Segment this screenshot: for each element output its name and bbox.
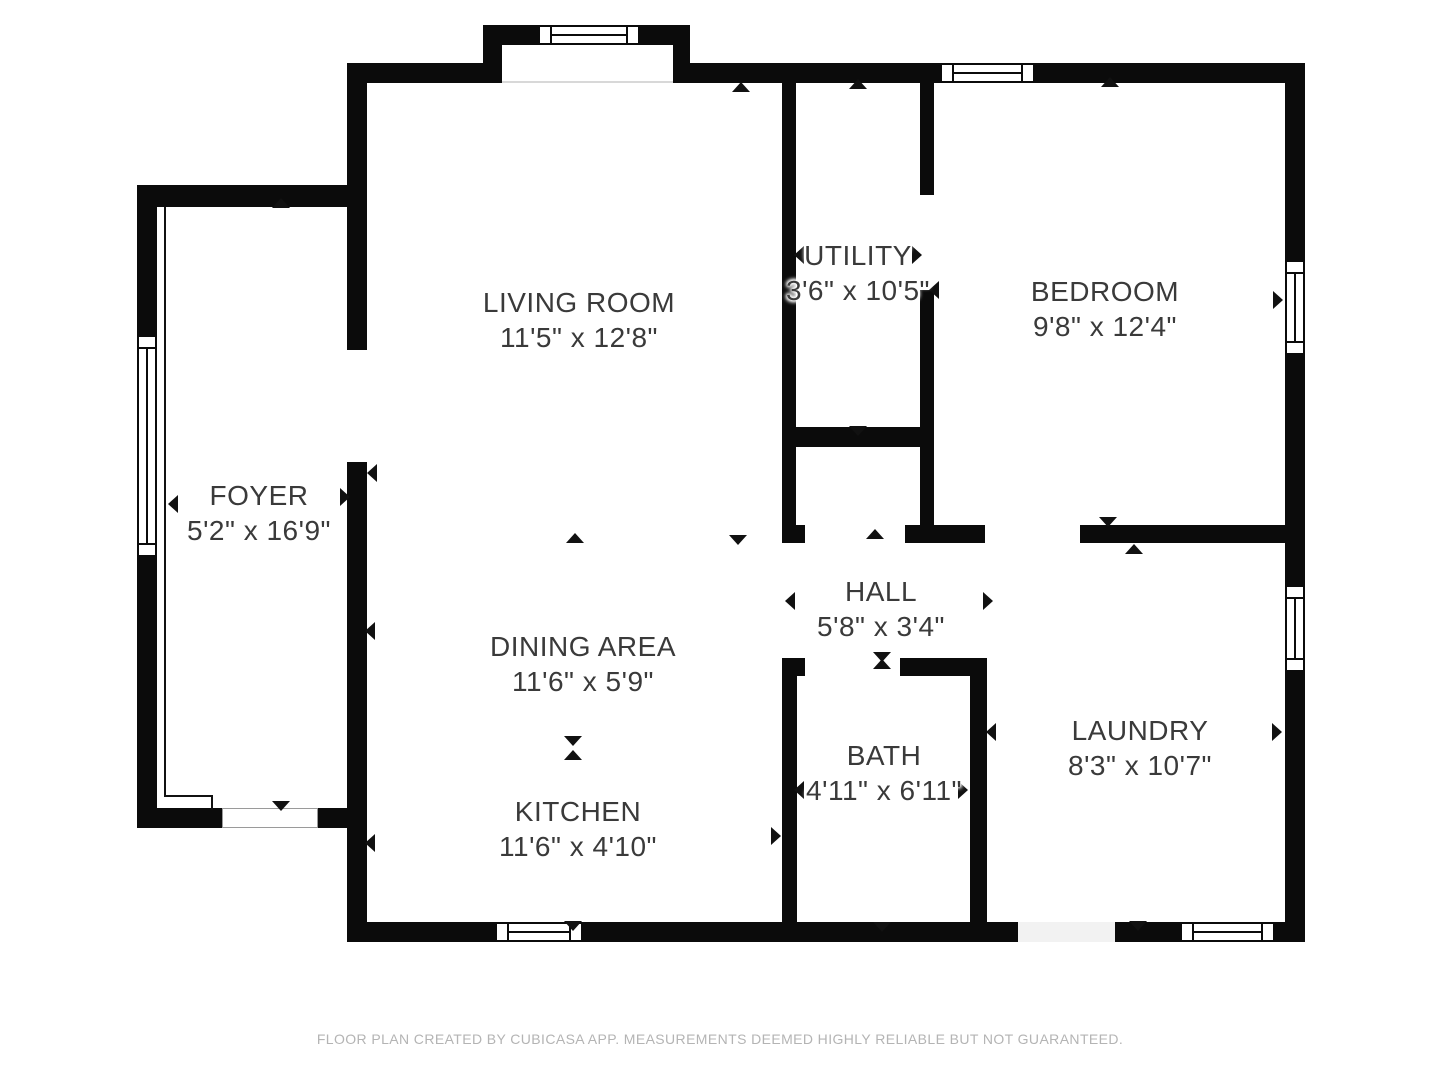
window-centerline: [551, 34, 627, 36]
dimension-arrow-icon: [1272, 723, 1282, 741]
room-dimensions: 11'6" x 4'10": [499, 829, 657, 864]
dimension-arrow-icon: [849, 426, 867, 436]
dimension-arrow-icon: [732, 82, 750, 92]
wall: [347, 462, 367, 922]
dimension-arrow-icon: [367, 464, 377, 482]
floor-plan-page: LIVING ROOM 11'5" x 12'8" UTILITY 3'6" x…: [0, 0, 1440, 1080]
wall: [970, 676, 987, 922]
dimension-arrow-icon: [873, 659, 891, 669]
door-opening: [502, 45, 673, 83]
dimension-arrow-icon: [785, 592, 795, 610]
room-name: DINING AREA: [490, 629, 676, 664]
wall: [782, 676, 797, 922]
room-label-utility: UTILITY 3'6" x 10'5": [786, 238, 930, 308]
dimension-arrow-icon: [771, 827, 781, 845]
room-label-foyer: FOYER 5'2" x 16'9": [187, 478, 331, 548]
window-icon: [1285, 260, 1305, 355]
room-name: HALL: [817, 574, 945, 609]
thin-wall-line: [211, 795, 213, 810]
thin-wall-line: [164, 795, 213, 797]
window-centerline: [953, 72, 1022, 74]
wall: [782, 658, 805, 676]
dimension-arrow-icon: [1099, 517, 1117, 527]
window-centerline: [146, 348, 148, 544]
dimension-arrow-icon: [1125, 544, 1143, 554]
wall: [1080, 525, 1285, 543]
wall: [900, 658, 987, 676]
dimension-arrow-icon: [873, 922, 891, 932]
room-label-kitchen: KITCHEN 11'6" x 4'10": [499, 794, 657, 864]
room-dimensions: 3'6" x 10'5": [786, 273, 930, 308]
room-name: LAUNDRY: [1068, 713, 1212, 748]
floor-plan: LIVING ROOM 11'5" x 12'8" UTILITY 3'6" x…: [0, 0, 1440, 1080]
dimension-arrow-icon: [929, 281, 939, 299]
wall: [318, 808, 367, 828]
door-opening: [1018, 922, 1115, 942]
room-name: BEDROOM: [1031, 274, 1179, 309]
thin-wall-line: [164, 207, 166, 797]
dimension-arrow-icon: [564, 921, 582, 931]
window-centerline: [1294, 598, 1296, 659]
room-name: LIVING ROOM: [483, 285, 675, 320]
wall: [137, 185, 347, 207]
dimension-arrow-icon: [1129, 921, 1147, 931]
room-name: KITCHEN: [499, 794, 657, 829]
wall: [920, 83, 934, 195]
room-dimensions: 11'6" x 5'9": [490, 664, 676, 699]
window-icon: [940, 63, 1035, 83]
room-name: UTILITY: [786, 238, 930, 273]
room-label-living-room: LIVING ROOM 11'5" x 12'8": [483, 285, 675, 355]
room-dimensions: 9'8" x 12'4": [1031, 309, 1179, 344]
room-dimensions: 5'8" x 3'4": [817, 609, 945, 644]
room-name: BATH: [806, 738, 962, 773]
dimension-arrow-icon: [1101, 77, 1119, 87]
dimension-arrow-icon: [365, 622, 375, 640]
room-label-hall: HALL 5'8" x 3'4": [817, 574, 945, 644]
dimension-arrow-icon: [566, 533, 584, 543]
dimension-arrow-icon: [564, 736, 582, 746]
room-dimensions: 5'2" x 16'9": [187, 513, 331, 548]
dimension-arrow-icon: [866, 529, 884, 539]
dimension-arrow-icon: [272, 198, 290, 208]
dimension-arrow-icon: [849, 79, 867, 89]
window-icon: [137, 335, 157, 557]
wall: [347, 922, 1305, 942]
room-dimensions: 11'5" x 12'8": [483, 320, 675, 355]
room-dimensions: 4'11" x 6'11": [806, 773, 962, 808]
window-centerline: [1294, 273, 1296, 342]
wall: [905, 525, 985, 543]
window-icon: [1285, 585, 1305, 672]
dimension-arrow-icon: [986, 723, 996, 741]
room-label-bedroom: BEDROOM 9'8" x 12'4": [1031, 274, 1179, 344]
dimension-arrow-icon: [1273, 291, 1283, 309]
door-opening: [222, 808, 318, 828]
dimension-arrow-icon: [365, 834, 375, 852]
floor-plan-disclaimer: FLOOR PLAN CREATED BY CUBICASA APP. MEAS…: [0, 1031, 1440, 1047]
room-dimensions: 8'3" x 10'7": [1068, 748, 1212, 783]
room-name: FOYER: [187, 478, 331, 513]
window-centerline: [508, 931, 570, 933]
dimension-arrow-icon: [794, 781, 804, 799]
dimension-arrow-icon: [340, 488, 350, 506]
dimension-arrow-icon: [168, 495, 178, 513]
wall: [1285, 63, 1305, 942]
wall: [782, 525, 805, 543]
room-label-laundry: LAUNDRY 8'3" x 10'7": [1068, 713, 1212, 783]
door-opening: [502, 81, 673, 83]
room-label-bath: BATH 4'11" x 6'11": [806, 738, 962, 808]
wall: [347, 63, 367, 350]
wall: [920, 290, 934, 525]
dimension-arrow-icon: [729, 535, 747, 545]
window-icon: [1180, 922, 1275, 942]
room-label-dining-area: DINING AREA 11'6" x 5'9": [490, 629, 676, 699]
dimension-arrow-icon: [564, 750, 582, 760]
wall: [137, 808, 222, 828]
dimension-arrow-icon: [983, 592, 993, 610]
window-icon: [538, 25, 640, 45]
window-centerline: [1193, 931, 1262, 933]
dimension-arrow-icon: [272, 801, 290, 811]
